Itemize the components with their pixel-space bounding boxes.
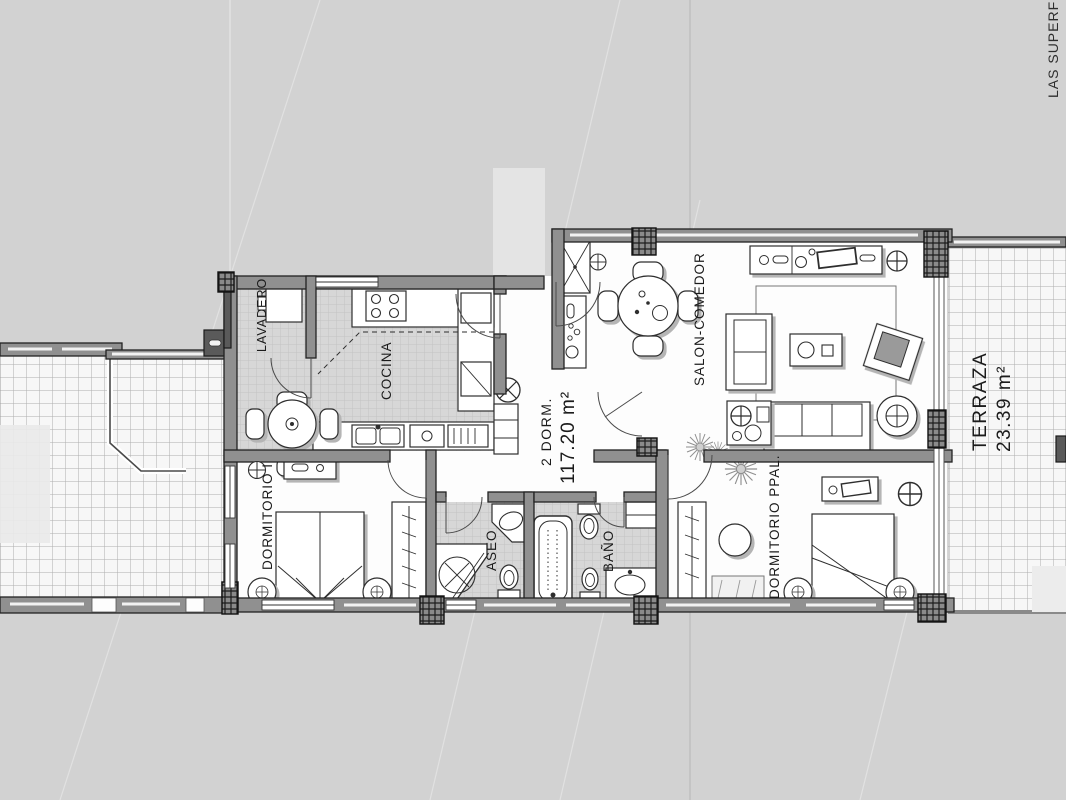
kitchen-sink [352, 425, 404, 448]
room-label-salon: SALON-COMEDOR [692, 252, 707, 386]
ceiling-light-icon [590, 254, 606, 270]
window [316, 277, 378, 287]
wall-lavadero-cocina [306, 276, 316, 358]
unit-area-label: 117.20 m² [558, 391, 579, 484]
unit-type-label: 2 DORM. [538, 397, 554, 466]
window [446, 600, 476, 610]
room-label-aseo: ASEO [484, 529, 499, 571]
pillar [420, 596, 444, 624]
light-shaft [493, 168, 545, 276]
dining-chair [598, 291, 618, 321]
room-label-dormitorio1: DORMITORIO I [260, 463, 275, 570]
bidet [580, 568, 600, 601]
ceiling-light-icon [899, 483, 922, 506]
edge-note: LAS SUPERFICIES [1045, 0, 1061, 98]
pillar [928, 410, 946, 448]
stove [366, 291, 406, 321]
pillar [634, 596, 658, 624]
tv-sideboard [750, 246, 882, 274]
kitchen-chair [246, 409, 264, 439]
terraza-corner-overlay [1032, 566, 1066, 612]
window [225, 466, 235, 518]
sofa-3-seat [764, 402, 870, 450]
pillar [218, 272, 234, 292]
wardrobe [678, 502, 706, 604]
room-label-cocina: COCINA [379, 341, 394, 400]
wall-entry [494, 276, 544, 289]
wall-salon-bottom-b [704, 450, 952, 462]
floor-plan-image: LAVADERO COCINA SALON-COMEDOR DORMITORIO… [0, 0, 1066, 800]
tv [817, 248, 857, 269]
room-label-dormitorio-ppal: DORMITORIO PPAL. [767, 454, 782, 599]
washing-machine [266, 286, 302, 322]
round-table [719, 524, 751, 556]
pillar [924, 231, 948, 277]
dish-rack [448, 425, 488, 447]
sofa-2-seat [726, 314, 772, 390]
wardrobe [392, 502, 426, 604]
terraza-area-label: 23.39 m² [994, 365, 1015, 452]
left-terrace [0, 330, 230, 613]
wall-kitchen-right-b [494, 334, 506, 394]
kitchen-chair [320, 409, 338, 439]
hall-cabinet [494, 404, 518, 454]
dining-chair [633, 336, 663, 356]
window [225, 544, 235, 588]
lamp-table [877, 396, 917, 436]
toilet [498, 565, 520, 600]
wall-texture-strip [224, 290, 231, 348]
window [884, 600, 914, 610]
awning-overlay [0, 425, 50, 543]
terraza-right-pillar [1056, 436, 1066, 462]
wall-bano-top-a [534, 492, 596, 502]
terraza-label: TERRAZA [970, 352, 991, 451]
coffee-table [790, 334, 842, 366]
wall-salon-left [552, 229, 564, 369]
wall-aseo-bano [524, 492, 534, 608]
wall-dorm1-aseo [426, 450, 436, 608]
double-bed [812, 514, 894, 608]
dresser [822, 477, 878, 501]
media-corner-unit [727, 401, 771, 445]
double-bed [276, 512, 364, 604]
ceiling-light-icon [887, 251, 907, 271]
pillar [918, 594, 946, 622]
window [262, 600, 334, 610]
dishwasher [410, 425, 444, 447]
room-label-bano: BAÑO [601, 530, 616, 572]
fridge [461, 293, 491, 323]
bathtub [534, 516, 572, 606]
wall-bano-dormppal [656, 450, 668, 608]
room-label-lavadero: LAVADERO [255, 278, 269, 352]
pillar [632, 228, 656, 255]
pillar [637, 438, 657, 456]
wall-dorm1-top [224, 450, 390, 462]
wall-aseo-top-a [436, 492, 446, 502]
